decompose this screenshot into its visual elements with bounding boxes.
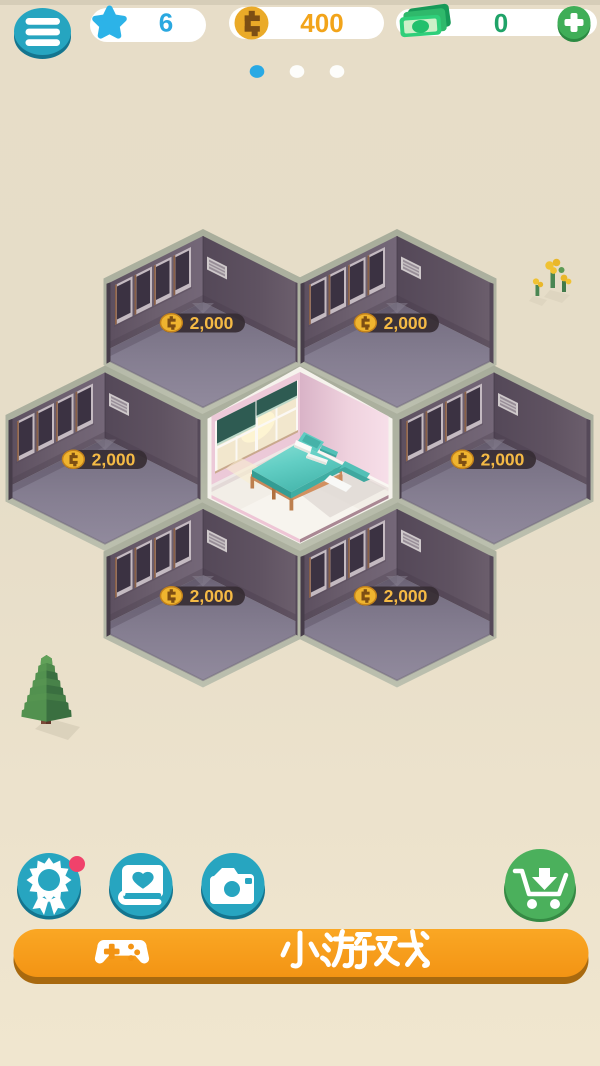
svg-text:0: 0: [494, 8, 508, 38]
svg-text:6: 6: [159, 8, 173, 38]
svg-text:400: 400: [300, 8, 343, 38]
